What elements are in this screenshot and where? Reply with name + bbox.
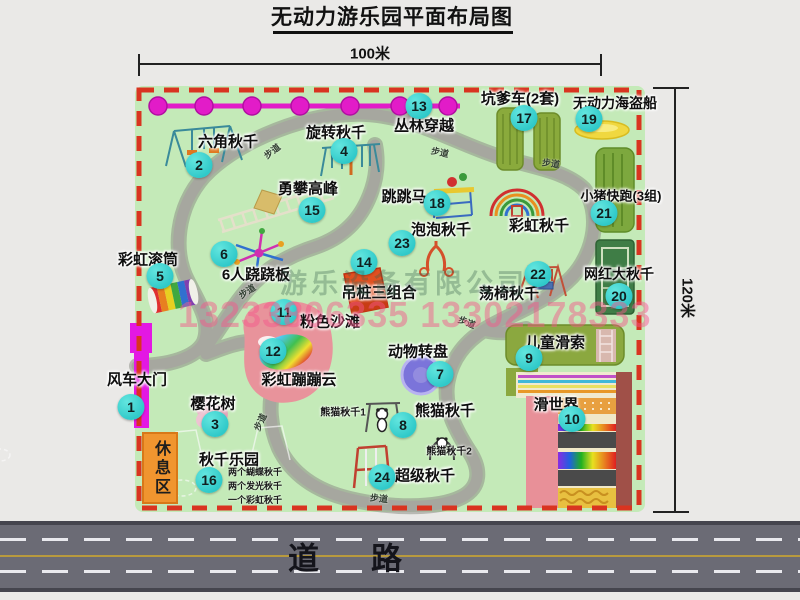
feature-badge: 1 bbox=[118, 394, 145, 420]
feature-badge: 13 bbox=[406, 93, 433, 119]
feature-badge: 17 bbox=[511, 105, 538, 131]
road: 道路 bbox=[0, 521, 800, 592]
feature-badge: 9 bbox=[516, 345, 543, 371]
feature-label: 勇攀高峰 bbox=[278, 178, 338, 199]
feature-badge: 5 bbox=[147, 263, 174, 289]
feature-badge: 22 bbox=[525, 261, 552, 287]
feature-badge: 19 bbox=[576, 106, 603, 132]
feature-label: 彩虹蹦蹦云 bbox=[261, 369, 336, 390]
page-title: 无动力游乐园平面布局图 bbox=[271, 1, 513, 31]
feature-label: 风车大门 bbox=[107, 369, 167, 390]
feature-label: 泡泡秋千 bbox=[411, 219, 471, 240]
feature-badge: 7 bbox=[427, 361, 454, 387]
feature-label: 彩虹秋千 bbox=[509, 215, 569, 236]
watermark-phone: 13233806335 13302178333 bbox=[178, 294, 651, 336]
rest-area-label: 休息区 bbox=[148, 440, 172, 497]
trail-label: 步道 bbox=[541, 155, 561, 170]
width-dimension-label: 100米 bbox=[350, 43, 390, 64]
feature-badge: 15 bbox=[299, 197, 326, 223]
feature-sub-label: 熊猫秋千2 bbox=[426, 443, 472, 458]
swing-park-note-line: 一个彩虹秋千 bbox=[228, 493, 282, 507]
feature-badge: 3 bbox=[202, 411, 229, 437]
feature-label: 动物转盘 bbox=[388, 341, 448, 362]
feature-badge: 4 bbox=[331, 138, 358, 164]
feature-badge: 23 bbox=[389, 230, 416, 256]
road-label: 道路 bbox=[288, 534, 454, 579]
feature-badge: 18 bbox=[424, 190, 451, 216]
height-dimension-label: 120米 bbox=[678, 278, 699, 318]
feature-badge: 24 bbox=[369, 464, 396, 490]
title-underline bbox=[273, 31, 513, 34]
feature-sub-label: 熊猫秋千1 bbox=[320, 404, 366, 419]
feature-badge: 12 bbox=[260, 338, 287, 364]
feature-badge: 10 bbox=[559, 406, 586, 432]
feature-badge: 21 bbox=[591, 200, 618, 226]
swing-park-note-line: 两个蝴蝶秋千 bbox=[228, 465, 282, 479]
feature-label: 超级秋千 bbox=[395, 465, 455, 486]
feature-label: 六角秋千 bbox=[198, 131, 258, 152]
trail-label: 步道 bbox=[369, 491, 388, 506]
feature-label: 网红大秋千 bbox=[584, 264, 654, 284]
rest-area: 休息区 bbox=[142, 432, 178, 504]
feature-badge: 2 bbox=[186, 152, 213, 178]
feature-label: 跳跳马 bbox=[381, 186, 426, 207]
playground-plan-image: 无动力游乐园平面布局图 100米 120米 休息区 风车大门1六角秋千2樱花树3… bbox=[0, 0, 800, 600]
feature-badge: 8 bbox=[390, 412, 417, 438]
swing-park-notes: 两个蝴蝶秋千两个发光秋千一个彩虹秋千 bbox=[228, 465, 282, 507]
feature-badge: 6 bbox=[211, 241, 238, 267]
swing-park-note-line: 两个发光秋千 bbox=[228, 479, 282, 493]
feature-badge: 16 bbox=[196, 467, 223, 493]
feature-label: 熊猫秋千 bbox=[415, 400, 475, 421]
feature-label: 小猪快跑(3组) bbox=[581, 186, 662, 205]
